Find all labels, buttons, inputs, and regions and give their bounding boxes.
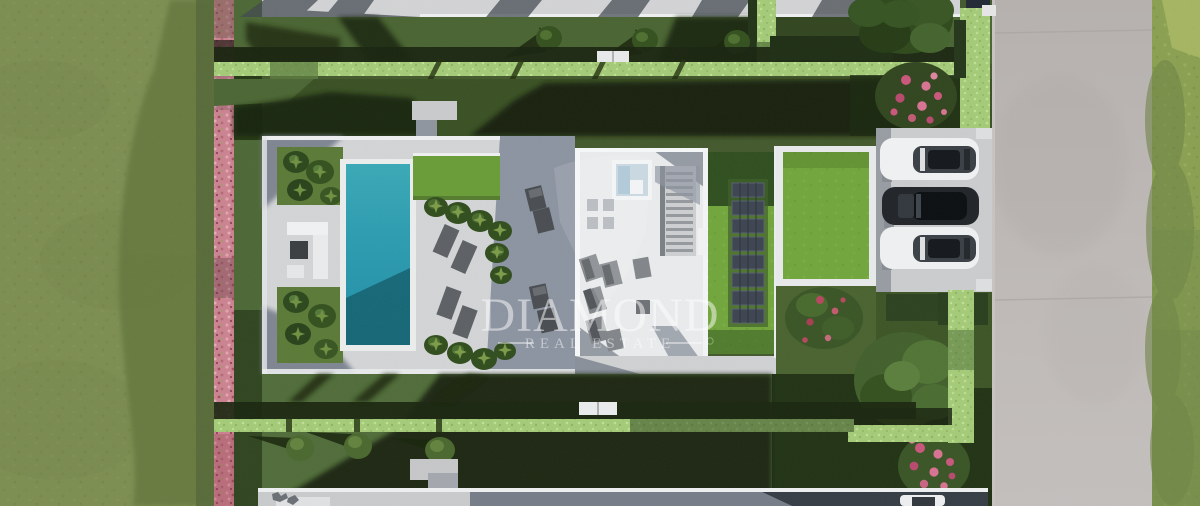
svg-text:REAL ESTATE: REAL ESTATE xyxy=(525,336,675,352)
svg-text:DIAMOND: DIAMOND xyxy=(481,289,720,342)
